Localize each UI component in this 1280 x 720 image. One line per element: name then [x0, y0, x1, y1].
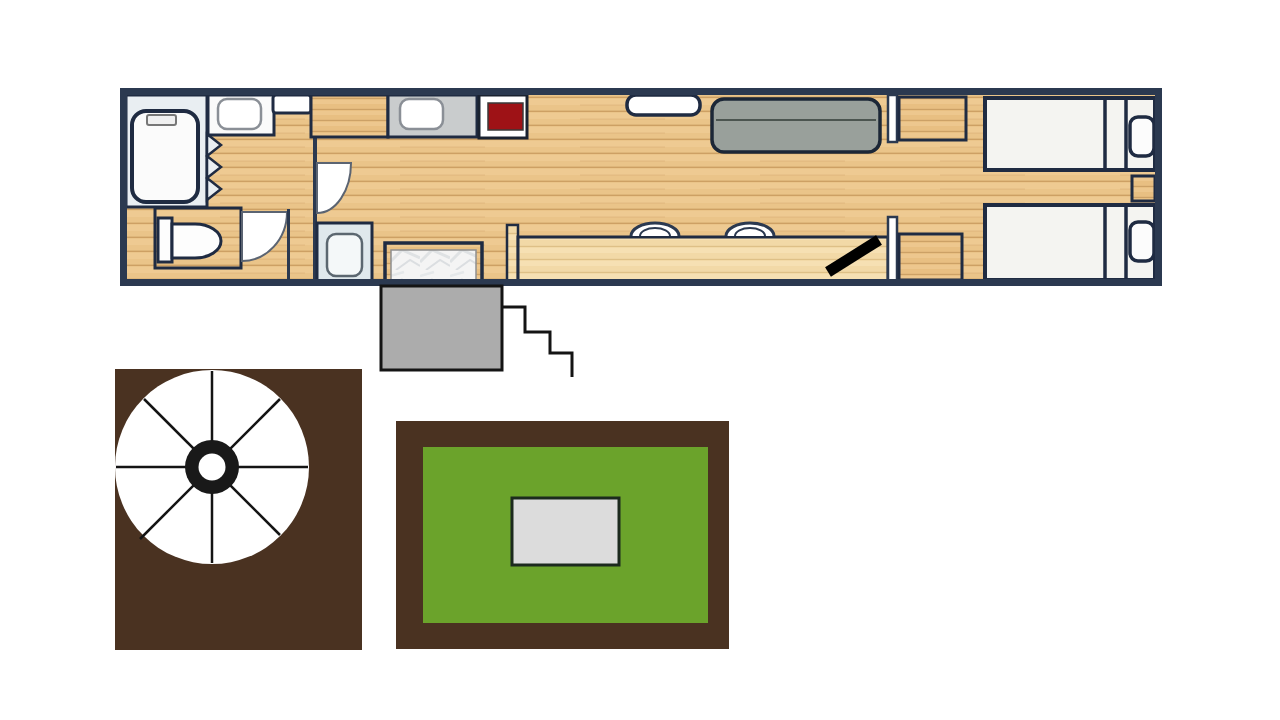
main-unit [123, 91, 1159, 284]
marble-island-counter [391, 250, 476, 281]
kitchen-cabinet [311, 95, 388, 137]
toilet-tank [158, 218, 172, 262]
wall-segment-bath [287, 209, 290, 283]
shower-curtain-zigzag-icon [207, 134, 221, 200]
umbrella-table-icon [115, 370, 309, 564]
pillow-top [1130, 117, 1154, 156]
wall-pocket-bottom [888, 217, 897, 283]
wardrobe-top-right [899, 97, 966, 140]
window [627, 95, 700, 115]
tub-faucet [147, 115, 176, 125]
kitchen-sink [400, 99, 443, 129]
floor-plan-drawing [0, 0, 1280, 720]
wall-pocket-top [888, 95, 897, 142]
wardrobe-bottom-right [899, 234, 962, 280]
sofa [712, 99, 880, 152]
garden-table [512, 498, 619, 565]
toilet-bowl [172, 224, 221, 258]
bathroom-sink [327, 234, 362, 276]
floor-plan-page [0, 0, 1280, 720]
wall-box [273, 95, 311, 113]
entry-landing [381, 286, 502, 370]
half-wall [507, 225, 518, 283]
nightstand [1132, 176, 1155, 201]
stove [488, 103, 523, 130]
vanity-sink [218, 99, 261, 129]
pillow-bottom [1130, 222, 1154, 261]
umbrella-hub-inner [199, 454, 226, 481]
breakfast-bar-counter [518, 237, 888, 283]
